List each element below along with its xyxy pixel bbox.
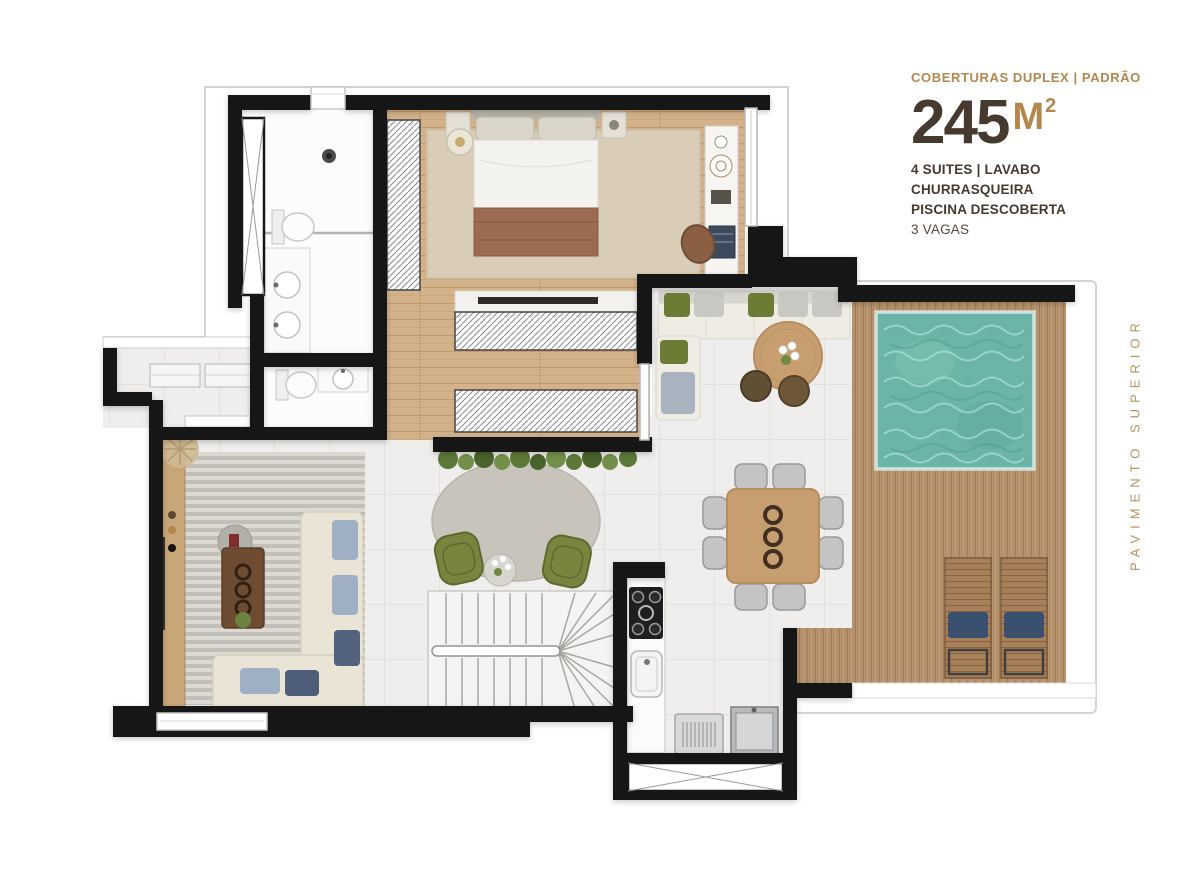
living-room	[160, 416, 365, 713]
prep-sink-steel	[731, 707, 778, 756]
master-bedroom	[427, 110, 738, 279]
deck-extension	[797, 628, 852, 683]
staircase	[428, 591, 618, 710]
area-superscript: 2	[1045, 96, 1056, 116]
nightstand-lamp	[609, 120, 619, 130]
feature-vagas: 3 VAGAS	[911, 220, 1141, 240]
sun-lounger-2	[1001, 558, 1047, 678]
feature-list: 4 SUITES | LAVABO CHURRASQUEIRA PISCINA …	[911, 160, 1141, 240]
deck-fascia	[852, 683, 1096, 698]
plan-category: COBERTURAS DUPLEX | PADRÃO	[911, 70, 1141, 85]
pouf-2	[779, 376, 809, 406]
lavabo-toilet	[286, 372, 316, 398]
feature-suites: 4 SUITES | LAVABO	[911, 160, 1141, 180]
bedroom-door	[311, 87, 345, 109]
feature-churrasqueira: CHURRASQUEIRA	[911, 180, 1141, 200]
pool	[876, 312, 1034, 469]
floor-plan-page: COBERTURAS DUPLEX | PADRÃO 245 M 2 4 SUI…	[0, 0, 1200, 887]
floor-level-label: PAVIMENTO SUPERIOR	[1122, 298, 1148, 590]
feature-piscina: PISCINA DESCOBERTA	[911, 200, 1141, 220]
area-unit: M	[1012, 98, 1044, 136]
wardrobe-row-1	[455, 312, 637, 350]
wardrobe-row-2	[455, 390, 637, 432]
info-panel: COBERTURAS DUPLEX | PADRÃO 245 M 2 4 SUI…	[911, 70, 1141, 240]
living-window	[157, 713, 267, 730]
tv-screen	[478, 297, 598, 304]
churrasqueira-grill	[675, 714, 723, 754]
sideboard	[185, 416, 250, 427]
cooktop	[629, 587, 663, 639]
wardrobe-left-strip	[387, 120, 420, 290]
area-figure: 245 M 2	[911, 92, 1141, 154]
pendant-light	[447, 129, 473, 155]
area-value: 245	[911, 92, 1008, 154]
double-vanity	[264, 248, 310, 353]
sun-lounger-1	[945, 558, 991, 678]
kitchen-sink	[631, 651, 662, 697]
stair-handrail	[432, 646, 560, 656]
duct-shaft-1	[242, 118, 264, 295]
duct-shaft-2	[628, 763, 783, 791]
toilet	[272, 210, 314, 244]
pouf-1	[741, 371, 771, 401]
lounge-glass-door	[640, 364, 649, 440]
bedroom-window	[745, 108, 757, 226]
